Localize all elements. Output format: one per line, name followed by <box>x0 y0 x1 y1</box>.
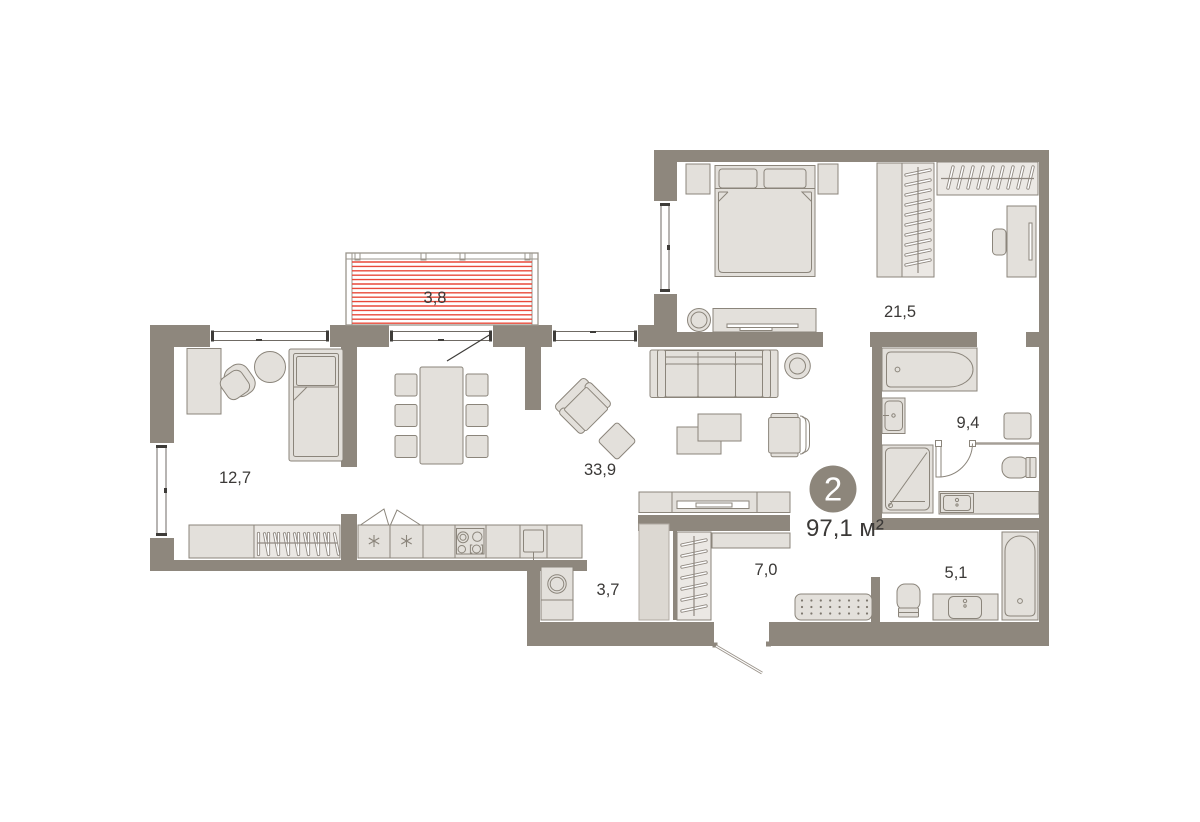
svg-text:2: 2 <box>824 471 842 508</box>
svg-text:21,5: 21,5 <box>884 303 916 321</box>
svg-text:12,7: 12,7 <box>219 469 251 487</box>
svg-text:33,9: 33,9 <box>584 461 616 479</box>
svg-text:9,4: 9,4 <box>957 414 980 432</box>
svg-text:3,7: 3,7 <box>597 581 620 599</box>
svg-text:97,1 м²: 97,1 м² <box>806 515 884 542</box>
svg-text:5,1: 5,1 <box>945 564 968 582</box>
svg-text:7,0: 7,0 <box>755 561 778 579</box>
svg-text:3,8: 3,8 <box>424 289 447 307</box>
